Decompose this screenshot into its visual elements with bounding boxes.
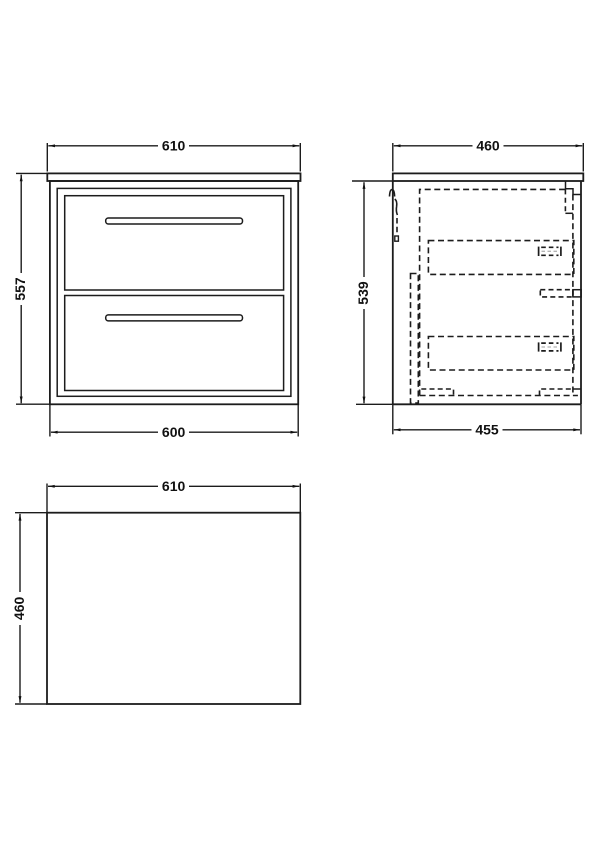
svg-text:557: 557 xyxy=(12,277,28,301)
svg-text:539: 539 xyxy=(355,281,371,305)
svg-text:610: 610 xyxy=(162,478,186,494)
svg-text:460: 460 xyxy=(476,138,500,154)
svg-text:600: 600 xyxy=(162,424,186,440)
svg-text:610: 610 xyxy=(162,138,186,154)
svg-text:455: 455 xyxy=(475,422,499,438)
svg-text:460: 460 xyxy=(11,597,27,621)
